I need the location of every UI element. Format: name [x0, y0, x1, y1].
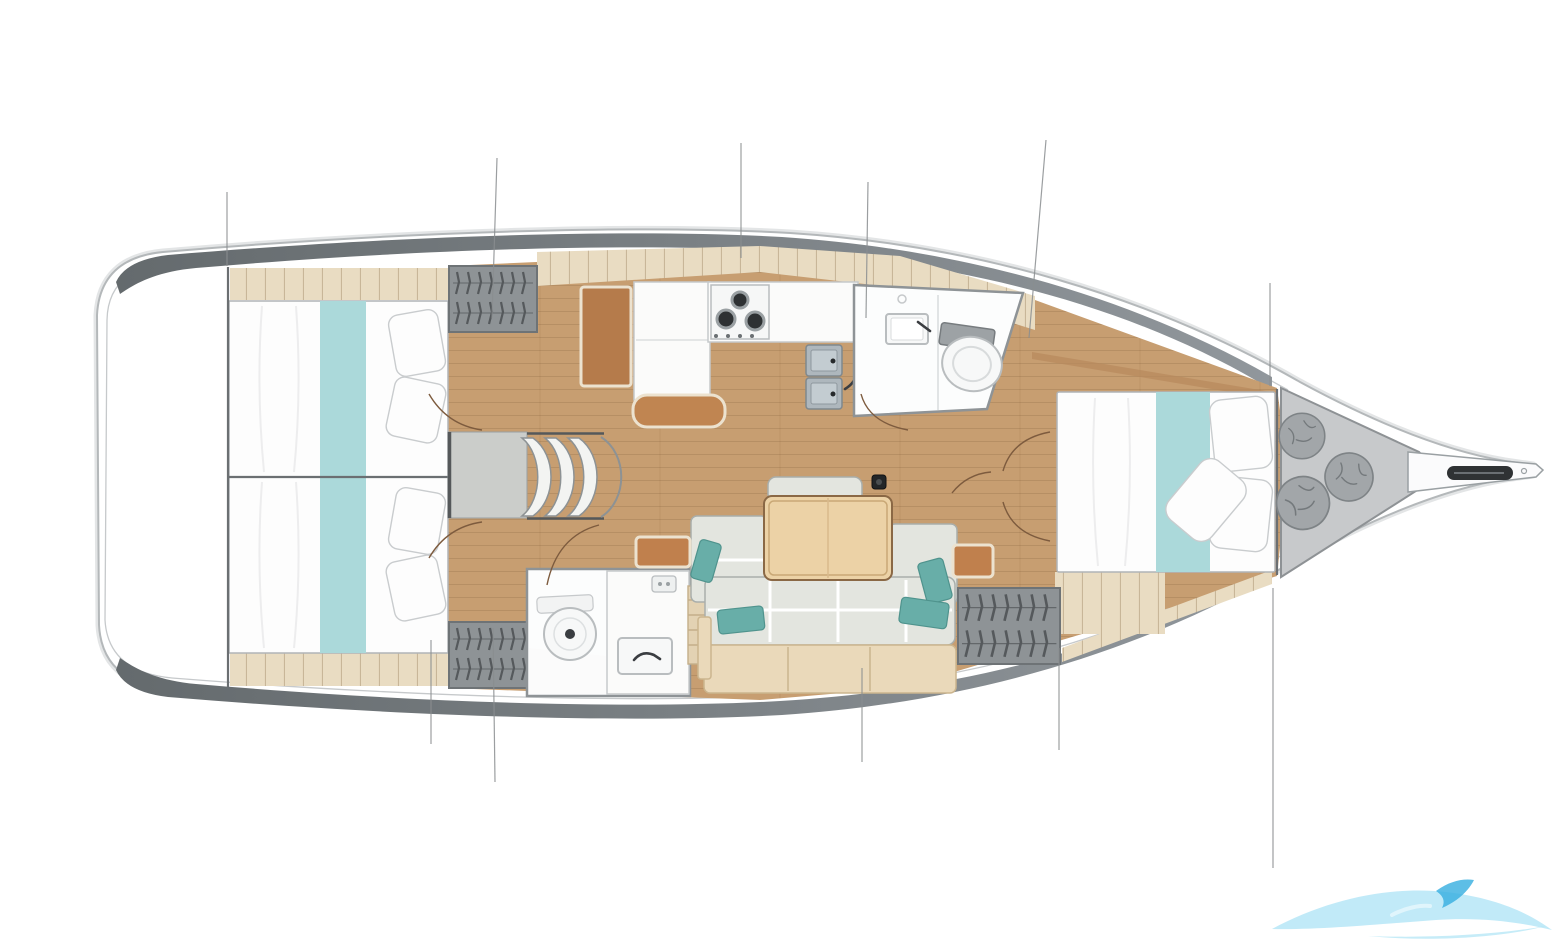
fwd-cabin-floor-planks: [1055, 572, 1165, 634]
aft-plank-shelf-port: [230, 268, 448, 300]
aft-plank-shelf-starboard: [230, 652, 448, 686]
chart-table: [581, 287, 631, 386]
speaker: [872, 475, 886, 489]
forward-bed: [1057, 392, 1275, 572]
head-counter: [607, 571, 689, 694]
companionway-platform: [448, 432, 527, 518]
pillow: [387, 308, 447, 378]
stove: [711, 285, 769, 339]
soap-dish: [652, 576, 676, 592]
sail-bag: [1279, 413, 1325, 459]
deck-plan-drawing: [0, 0, 1560, 952]
side-shelf-port: [636, 537, 690, 567]
wardrobe-starboard-forward: [958, 588, 1060, 664]
aft-cabin-starboard-bed: [229, 477, 448, 653]
galley-cabinet: [634, 282, 710, 400]
burner: [746, 312, 764, 330]
boat-floorplan-canvas: [0, 0, 1560, 952]
head-sink: [618, 638, 672, 674]
watermark-wave-logo: [1272, 879, 1552, 938]
aft-cabin-port-bed: [229, 301, 448, 477]
side-shelf-starboard: [953, 545, 993, 577]
head-aft: [527, 569, 712, 696]
burner: [732, 292, 748, 308]
head-sink: [886, 314, 930, 344]
burner: [717, 310, 735, 328]
dining-table: [764, 496, 892, 580]
galley-bench: [633, 395, 725, 427]
